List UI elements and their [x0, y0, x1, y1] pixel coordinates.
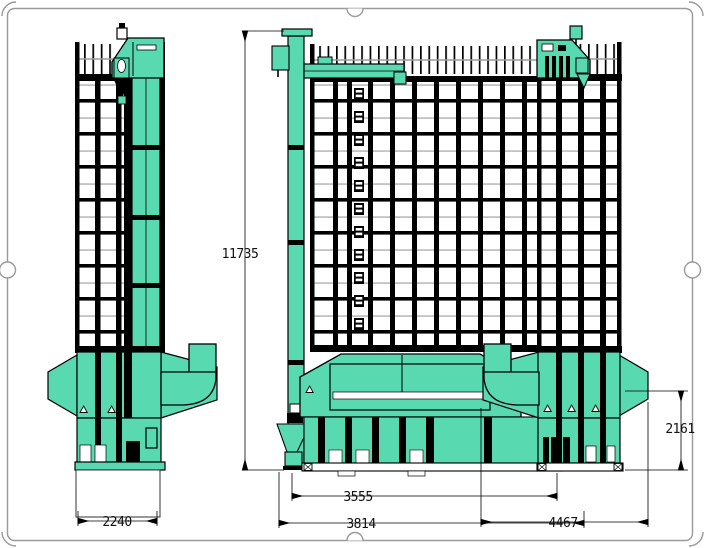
anchor-pad — [614, 464, 622, 471]
left-flare — [48, 355, 77, 416]
drawing-sheet: 2240 — [0, 0, 705, 548]
base-plate — [537, 463, 623, 471]
dim-text-3555: 3555 — [343, 490, 372, 505]
base-plate — [75, 462, 165, 470]
base-section — [537, 418, 623, 471]
registration-mark-left — [0, 262, 16, 278]
registration-mark-bottom — [347, 533, 363, 541]
dim-width-3814: 3814 — [279, 472, 584, 532]
vent-box — [117, 28, 127, 39]
registration-mark-top — [347, 9, 363, 17]
front-view: 11735 3555 3814 — [222, 29, 584, 532]
legs-section — [302, 417, 562, 476]
dim-text-2240: 2240 — [102, 515, 131, 530]
hopper-section — [483, 344, 648, 418]
registration-mark-right — [685, 262, 701, 278]
exhaust-duct — [161, 344, 216, 405]
anchor-pad — [538, 464, 546, 471]
dim-height-11735: 11735 — [222, 31, 284, 470]
dim-text-2161: 2161 — [665, 422, 694, 437]
foundation-pit — [76, 470, 160, 517]
hopper-section — [48, 344, 217, 418]
exhaust-duct — [484, 344, 539, 405]
drawing-canvas: 2240 — [0, 0, 705, 548]
dim-text-4467: 4467 — [548, 516, 577, 531]
dim-text-3814: 3814 — [346, 517, 376, 532]
base-plate — [302, 463, 562, 471]
corner-mark-bottom-right — [689, 532, 703, 546]
corner-mark-top-right — [689, 2, 703, 16]
dim-text-11735: 11735 — [222, 247, 259, 262]
vent-box — [570, 26, 582, 39]
elevator-side-pod — [272, 46, 289, 70]
corner-mark-bottom-left — [2, 532, 16, 546]
anchor-pad — [304, 464, 312, 471]
dim-width-3555: 3555 — [292, 473, 557, 505]
elevator-head-cap — [282, 29, 312, 36]
left-view: 2240 — [48, 23, 217, 530]
right-flare — [619, 355, 648, 416]
base-section — [75, 418, 165, 517]
